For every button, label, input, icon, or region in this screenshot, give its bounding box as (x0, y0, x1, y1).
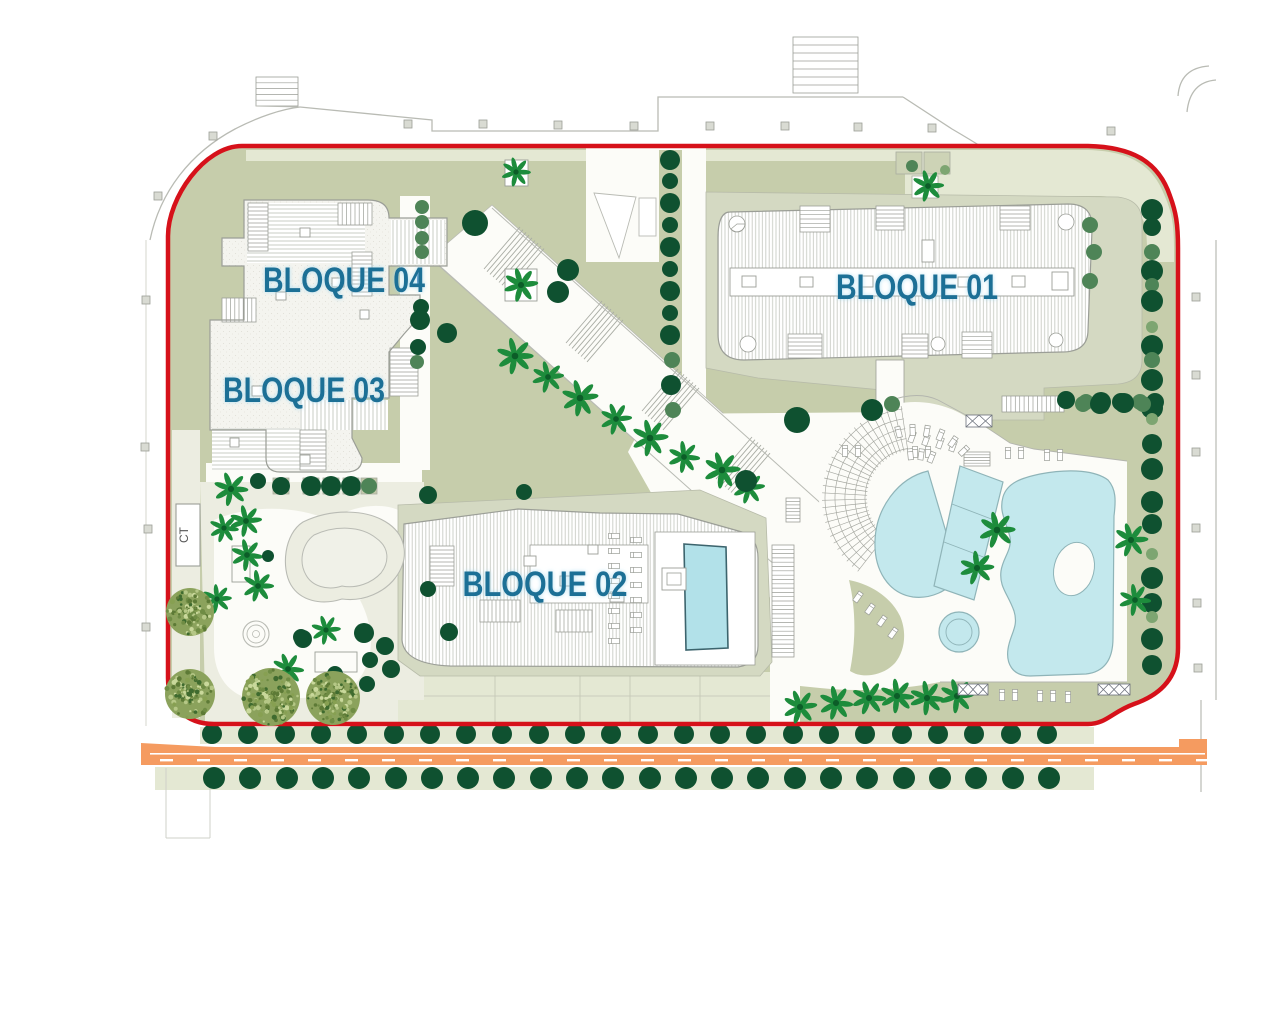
svg-text:CT: CT (177, 526, 191, 543)
svg-text:BLOQUE 03: BLOQUE 03 (223, 371, 385, 410)
svg-text:BLOQUE 02: BLOQUE 02 (463, 565, 628, 604)
svg-text:BLOQUE 01: BLOQUE 01 (836, 268, 998, 307)
svg-text:BLOQUE 04: BLOQUE 04 (263, 261, 425, 300)
